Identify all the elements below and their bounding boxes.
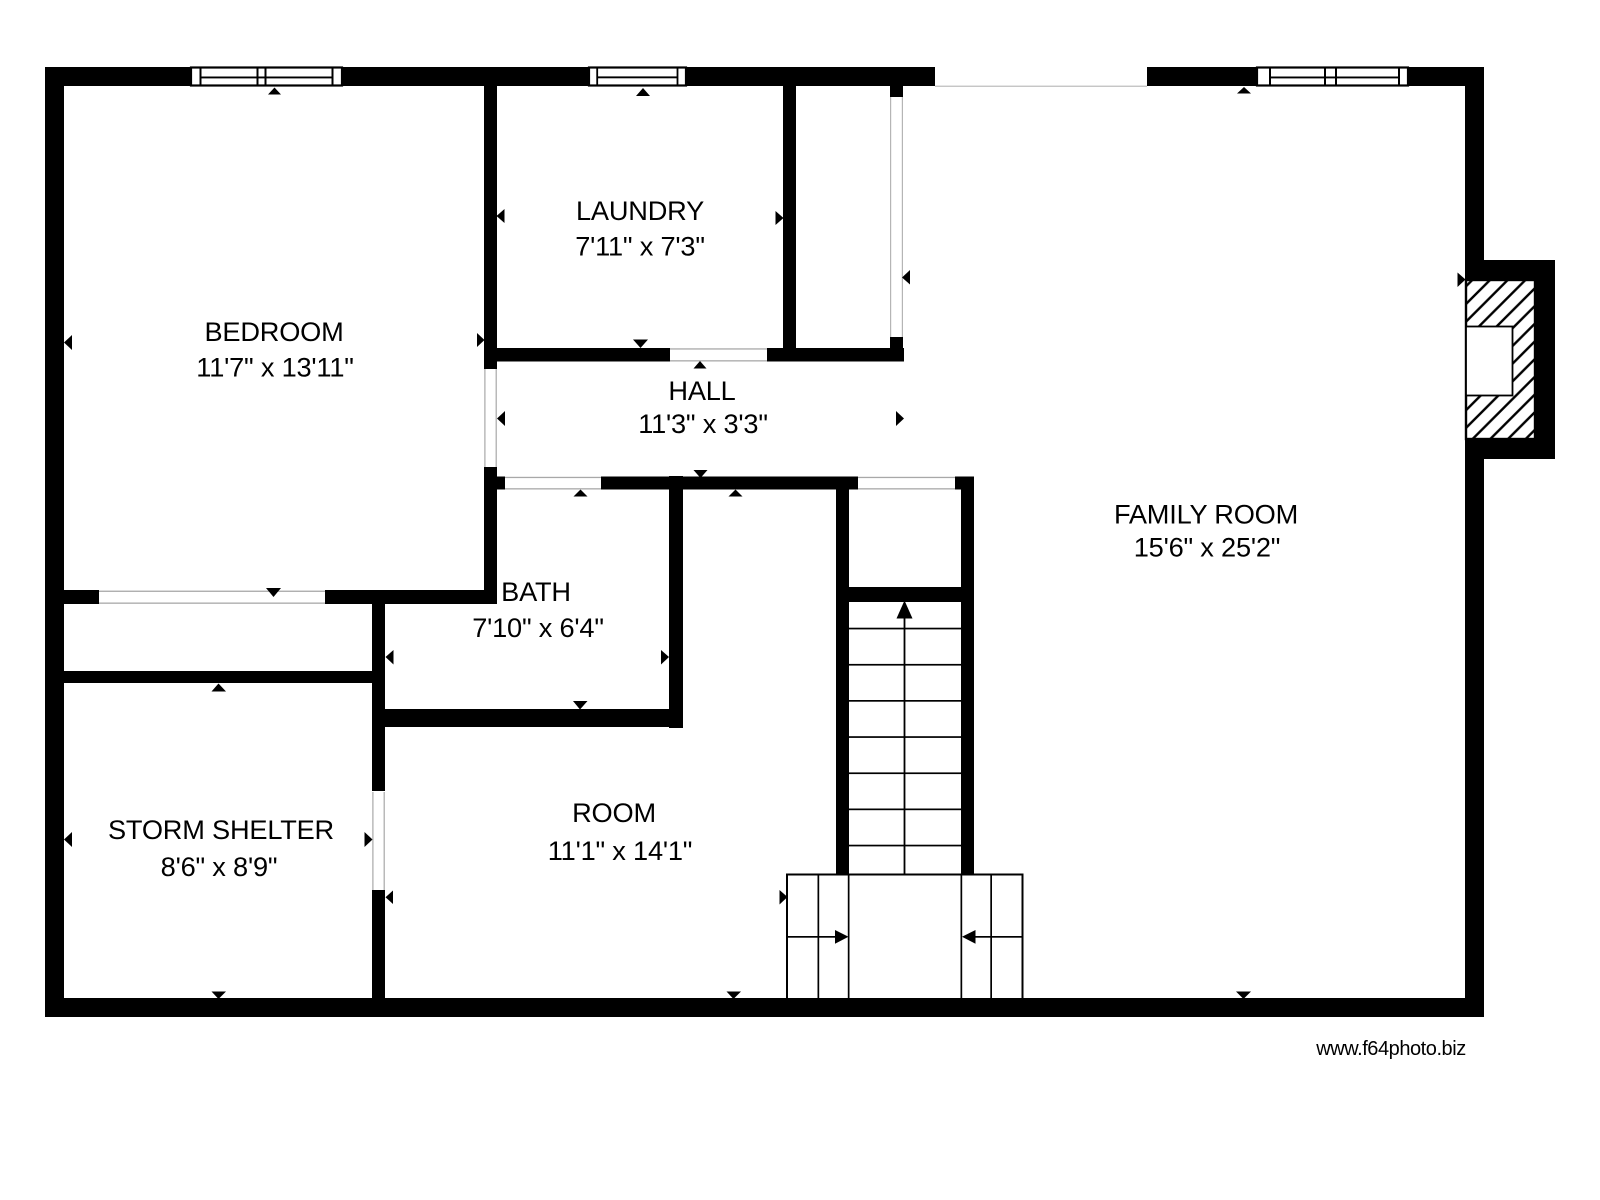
- svg-text:11'3" x 3'3": 11'3" x 3'3": [638, 408, 768, 439]
- svg-text:BATH: BATH: [501, 576, 571, 607]
- svg-text:8'6" x 8'9": 8'6" x 8'9": [161, 851, 278, 882]
- svg-text:15'6" x 25'2": 15'6" x 25'2": [1134, 532, 1281, 563]
- svg-text:7'10" x 6'4": 7'10" x 6'4": [472, 612, 604, 643]
- svg-text:LAUNDRY: LAUNDRY: [576, 195, 704, 226]
- svg-text:HALL: HALL: [668, 375, 735, 406]
- svg-text:11'7" x 13'11": 11'7" x 13'11": [196, 352, 353, 383]
- svg-text:7'11" x 7'3": 7'11" x 7'3": [575, 231, 705, 262]
- svg-text:11'1" x 14'1": 11'1" x 14'1": [548, 835, 693, 866]
- svg-text:www.f64photo.biz: www.f64photo.biz: [1315, 1038, 1466, 1060]
- svg-text:BEDROOM: BEDROOM: [204, 316, 343, 347]
- svg-text:ROOM: ROOM: [572, 797, 656, 828]
- svg-text:FAMILY ROOM: FAMILY ROOM: [1114, 499, 1298, 530]
- svg-text:STORM SHELTER: STORM SHELTER: [108, 814, 334, 845]
